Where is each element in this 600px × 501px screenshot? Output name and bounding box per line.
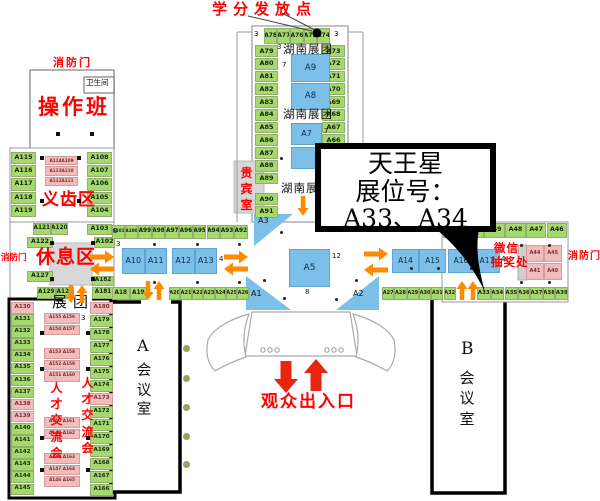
corner-marker: [86, 436, 90, 440]
arrow-up-room-b-1-icon: [457, 281, 468, 300]
booth-a116: A116: [11, 165, 36, 177]
talent-fair-label-left: 人才交流会: [50, 380, 63, 461]
booth-a90: A90: [255, 193, 278, 205]
booth-a86: A86: [255, 134, 278, 146]
aisle-dot: [196, 243, 199, 246]
aisle-dot: [280, 231, 283, 234]
aisle-dot: [548, 244, 551, 247]
aisle-num: 12: [332, 252, 341, 260]
booth-a2-label: A2: [353, 289, 364, 298]
booth-a135: A135: [11, 363, 34, 375]
room-b-name: 会议室: [459, 368, 475, 429]
booth-a176: A176: [90, 354, 113, 366]
booth-a140: A140: [11, 423, 34, 435]
green-dot: [183, 461, 190, 468]
booth-a167: A167: [90, 471, 113, 483]
aisle-num: 8: [305, 288, 309, 296]
booth-a152-a159: A152 A159: [44, 360, 80, 371]
aisle-dot: [470, 267, 473, 270]
booth-a146-a165: A146 A165: [44, 476, 80, 487]
aisle-dot: [153, 281, 156, 284]
booth-a132: A132: [11, 326, 34, 338]
corner-marker: [40, 331, 44, 335]
booth-a81: A81: [255, 71, 278, 83]
callout-line3: A33、A34: [321, 205, 490, 233]
booth-a33: A33: [477, 287, 491, 300]
booth-a31: A31: [431, 287, 443, 300]
aisle-dot: [238, 281, 241, 284]
booth-a93: A93: [220, 225, 234, 239]
booth-a166: A166: [90, 484, 113, 496]
booth-a27: A27: [382, 287, 394, 300]
dental-zone-label: 义齿区: [42, 191, 96, 211]
booth-a48: A48: [505, 223, 526, 238]
audience-entrance-label: 观众出入口: [261, 393, 356, 413]
talent-fair-label-right: 人才交流会: [81, 375, 94, 456]
corner-marker: [86, 331, 90, 335]
booth-a131: A131: [11, 314, 34, 326]
booth-a118: A118: [11, 192, 36, 204]
booth-a40: A40: [544, 263, 562, 280]
booth-a99: A99: [138, 225, 152, 239]
room-b-letter: B: [461, 340, 474, 360]
booth-a30: A30: [419, 287, 431, 300]
aisle-dot: [520, 244, 523, 247]
aisle-num: 4: [501, 255, 505, 263]
booth-a137: A137: [11, 387, 34, 399]
aisle-dot: [196, 281, 199, 284]
booth-a130: A130: [11, 302, 34, 314]
corner-marker: [40, 156, 44, 160]
exhibition-group-label: 展团: [52, 294, 94, 311]
booth-a94: A94: [207, 225, 221, 239]
corner-marker: [77, 156, 81, 160]
aisle-num: 7: [324, 127, 328, 135]
booth-a32: A32: [444, 287, 456, 300]
booth-a117: A117: [11, 178, 36, 190]
booth-a112a111: A112A111: [45, 177, 78, 186]
callout-line1: 天王星: [321, 150, 490, 178]
booth-a133: A133: [11, 338, 34, 350]
exhibition-floor-plan: 天王星 展位号： A33、A34 A78A77A76A75A74A79A80A8…: [0, 0, 600, 501]
booth-a181: A181: [92, 287, 114, 299]
arrow-up-entrance-icon: [304, 359, 328, 391]
arrow-right-tower-left-icon: [224, 251, 248, 264]
hunan-group-label-2: 湖南展团: [283, 108, 333, 121]
room-a-letter: A: [137, 337, 149, 355]
booth-a154-a157: A154 A157: [44, 325, 80, 336]
booth-a13: A13: [195, 248, 218, 274]
booth-a15: A15: [419, 249, 446, 273]
booth-a25: A25: [226, 287, 237, 300]
corner-marker: [40, 367, 44, 371]
booth-a12: A12: [172, 248, 195, 274]
booth-a96: A96: [179, 225, 193, 239]
booth-a47: A47: [526, 223, 547, 238]
aisle-dot: [335, 298, 338, 301]
booth-a139: A139: [11, 411, 34, 423]
booth-a8: A8: [291, 83, 330, 110]
booth-a1-label: A1: [251, 289, 262, 298]
booth-a138: A138: [11, 399, 34, 411]
corner-marker: [40, 468, 44, 472]
booth-a100: A100: [125, 225, 138, 239]
arrow-down-entrance-icon: [274, 361, 298, 393]
arrow-down-hunan-icon: [298, 196, 309, 216]
booth-a78: A78: [264, 28, 277, 44]
aisle-dot: [153, 243, 156, 246]
fire-door-left-label: 消防门: [1, 254, 27, 264]
operation-class-label: 操作班: [38, 95, 110, 119]
aisle-dot: [520, 281, 523, 284]
booth-a177: A177: [90, 341, 113, 353]
booth-a14: A14: [392, 249, 419, 273]
booth-a46: A46: [547, 223, 568, 238]
booth-a88: A88: [255, 160, 278, 172]
booth-a19: A19: [130, 287, 148, 300]
booth-a83: A83: [255, 96, 278, 108]
aisle-dot: [263, 279, 266, 282]
aisle-dot: [410, 267, 413, 270]
booth-a82: A82: [255, 83, 278, 95]
booth-a103: A103: [87, 224, 112, 235]
corner-marker: [91, 277, 95, 281]
booth-a97: A97: [165, 225, 179, 239]
corner-marker: [50, 277, 54, 281]
aisle-num: 4: [219, 255, 223, 263]
aisle-num: 3: [334, 30, 338, 38]
booth-a87: A87: [255, 147, 278, 159]
rest-area-label: 休息区: [36, 247, 96, 269]
booth-a134: A134: [11, 350, 34, 362]
booth-a37: A37: [530, 287, 543, 300]
booth-a114a109: A114A109: [45, 156, 78, 165]
booth-a119: A119: [11, 205, 36, 217]
booth-a141: A141: [11, 435, 34, 447]
booth-a113a110: A113A110: [45, 166, 78, 175]
booth-a143: A143: [11, 459, 34, 471]
green-dot: [183, 404, 190, 411]
fire-door-right-label: 消防门: [568, 251, 600, 263]
callout-line2: 展位号：: [321, 178, 490, 206]
booth-a18: A18: [112, 287, 130, 300]
aisle-dot: [283, 297, 286, 300]
corner-marker: [40, 199, 44, 203]
booth-a34: A34: [491, 287, 505, 300]
aisle-num: 3: [113, 227, 117, 235]
booth-a168: A168: [90, 458, 113, 470]
stage-circles: [261, 348, 343, 352]
booth-a115: A115: [11, 152, 36, 164]
booth-a85: A85: [255, 122, 278, 134]
arrow-left-tower-left-icon: [224, 263, 248, 276]
booth-a41: A41: [526, 263, 544, 280]
booth-a142: A142: [11, 447, 34, 459]
booth-a92: A92: [234, 225, 248, 239]
booth-a136: A136: [11, 375, 34, 387]
credit-point-label: 学分发放点: [212, 1, 317, 18]
booth-a121: A121: [33, 223, 51, 235]
booth-a179: A179: [90, 315, 113, 327]
wechat-lottery-label-2: 抽奖处: [491, 256, 529, 269]
corner-marker: [86, 367, 90, 371]
corner-marker: [40, 436, 44, 440]
aisle-num: 3: [116, 240, 120, 248]
booth-a21: A21: [180, 287, 191, 300]
aisle-num: 3: [81, 314, 85, 322]
booth-a80: A80: [255, 58, 278, 70]
aisle-num: 7: [282, 61, 286, 69]
booth-a44: A44: [526, 245, 544, 262]
aisle-num: 3: [254, 30, 258, 38]
corner-marker: [91, 241, 95, 245]
booth-a35: A35: [505, 287, 518, 300]
booth-a106: A106: [87, 178, 112, 190]
booth-a144: A144: [11, 471, 34, 483]
booth-a102: A102: [94, 237, 115, 248]
booth-a79: A79: [255, 45, 278, 57]
booth-a108: A108: [87, 152, 112, 164]
green-dot: [183, 345, 190, 352]
green-dot: [183, 433, 190, 440]
booth-a145: A145: [11, 484, 34, 496]
aisle-dot: [355, 279, 358, 282]
corner-marker: [56, 132, 60, 136]
booth-a89: A89: [255, 173, 278, 185]
hunan-group-label-1: 湖南展团: [283, 43, 333, 56]
aisle-dot: [280, 157, 283, 160]
booth-a23: A23: [203, 287, 214, 300]
booth-a120: A120: [51, 223, 69, 235]
arrow-left-tower-right-icon: [364, 264, 388, 277]
stage-right-wing: [353, 314, 395, 371]
booth-a10: A10: [122, 248, 145, 274]
booth-a98: A98: [152, 225, 166, 239]
booth-a155-a156: A155 A156: [44, 313, 80, 324]
booth-a24: A24: [215, 287, 226, 300]
booth-a3-label: A3: [258, 216, 269, 225]
aisle-num: 3: [277, 43, 281, 51]
arrow-right-tower-right-icon: [364, 248, 388, 261]
aisle-dot: [437, 267, 440, 270]
booth-a153-a158: A153 A158: [44, 348, 80, 359]
corner-marker: [50, 241, 54, 245]
wechat-lottery-label-1: 微信: [494, 242, 519, 255]
booth-a39: A39: [555, 287, 568, 300]
stage-center: [245, 312, 357, 356]
corner-marker: [86, 468, 90, 472]
booth-a28: A28: [394, 287, 406, 300]
booth-a22: A22: [192, 287, 203, 300]
booth-a9: A9: [291, 54, 330, 82]
vip-room-label: 贵宾室: [240, 165, 253, 214]
booth-a38: A38: [543, 287, 556, 300]
corner-marker: [77, 199, 81, 203]
booth-a147-a164: A147 A164: [44, 465, 80, 476]
booth-a36: A36: [518, 287, 531, 300]
booth-a84: A84: [255, 109, 278, 121]
green-dot: [183, 375, 190, 382]
fire-door-top-label: 消防门: [53, 57, 92, 70]
booth-a95: A95: [193, 225, 207, 239]
booth-a20: A20: [169, 287, 180, 300]
aisle-dot: [238, 243, 241, 246]
booth-a26: A26: [237, 287, 248, 300]
booth-a7: A7: [291, 123, 322, 145]
booth-a107: A107: [87, 165, 112, 177]
room-a-name: 会议室: [136, 362, 152, 421]
booth-a45: A45: [544, 245, 562, 262]
restroom-label: 卫生间: [86, 79, 109, 88]
uranus-callout: 天王星 展位号： A33、A34: [315, 143, 496, 232]
booth-a5: A5: [289, 249, 330, 287]
stage-left-wing: [207, 314, 249, 371]
booth-a178: A178: [90, 328, 113, 340]
booth-a182: A182: [92, 276, 114, 286]
corner-marker: [90, 132, 94, 136]
booth-a29: A29: [407, 287, 419, 300]
aisle-dot: [548, 281, 551, 284]
booth-a11: A11: [145, 248, 168, 274]
